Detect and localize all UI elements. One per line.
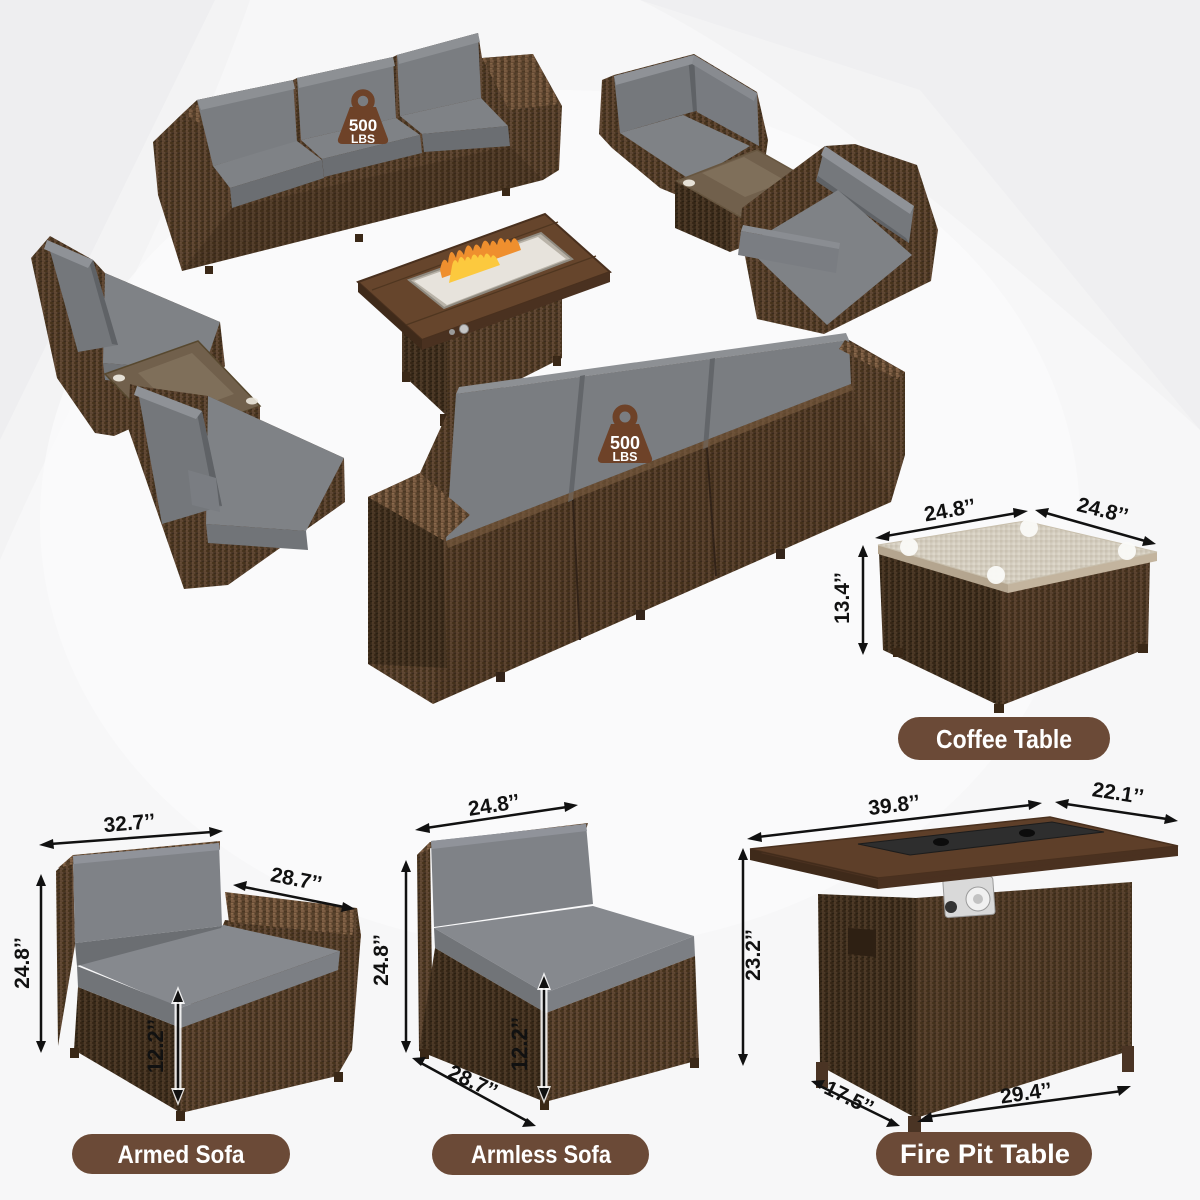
svg-text:Armless Sofa: Armless Sofa xyxy=(471,1141,612,1169)
svg-text:32.7’’: 32.7’’ xyxy=(103,810,157,837)
svg-text:13.4’’: 13.4’’ xyxy=(831,572,854,624)
svg-text:24.8’’: 24.8’’ xyxy=(370,934,393,986)
svg-text:Coffee Table: Coffee Table xyxy=(936,724,1072,754)
svg-text:Fire Pit Table: Fire Pit Table xyxy=(900,1139,1070,1169)
svg-text:12.2’’: 12.2’’ xyxy=(143,1019,168,1073)
svg-text:Armed Sofa: Armed Sofa xyxy=(118,1141,246,1169)
svg-text:23.2’’: 23.2’’ xyxy=(742,929,765,981)
svg-text:24.8’’: 24.8’’ xyxy=(11,937,34,989)
svg-text:LBS: LBS xyxy=(613,450,638,464)
svg-text:12.2’’: 12.2’’ xyxy=(507,1017,532,1071)
svg-text:LBS: LBS xyxy=(351,132,375,146)
